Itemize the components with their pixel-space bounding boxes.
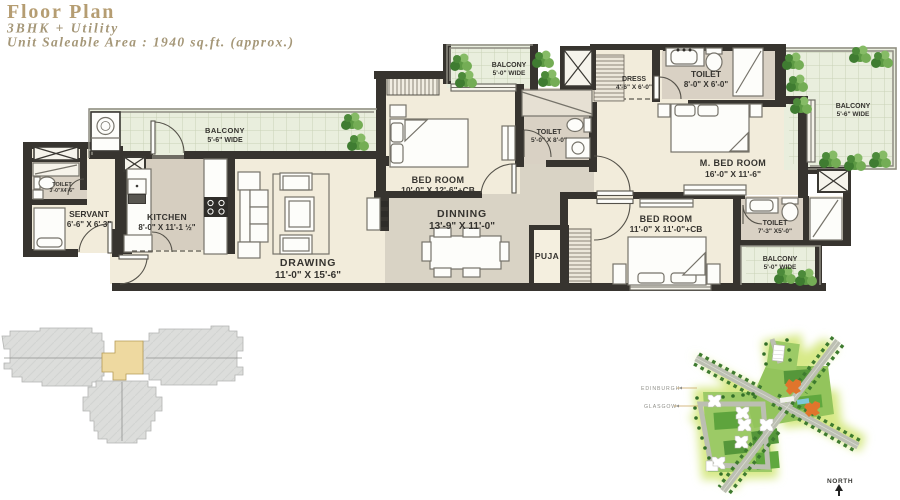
svg-text:DINNING: DINNING (437, 208, 487, 220)
svg-text:7'-3" X5'-0": 7'-3" X5'-0" (758, 228, 792, 235)
svg-text:5'-0" X 8'-0": 5'-0" X 8'-0" (531, 137, 567, 144)
svg-text:16'-0" X 11'-6": 16'-0" X 11'-6" (705, 169, 761, 179)
svg-text:11'-0" X 15'-6": 11'-0" X 15'-6" (275, 270, 341, 281)
svg-text:5'-0" WIDE: 5'-0" WIDE (493, 70, 526, 77)
svg-text:13'-9" X 11'-0": 13'-9" X 11'-0" (429, 221, 495, 232)
svg-text:BED ROOM: BED ROOM (640, 214, 693, 224)
svg-text:Unit Saleable Area : 1940 sq.f: Unit Saleable Area : 1940 sq.ft. (approx… (7, 35, 294, 50)
svg-text:M. BED ROOM: M. BED ROOM (700, 158, 766, 168)
svg-text:SERVANT: SERVANT (69, 209, 110, 219)
svg-text:5'-6" WIDE: 5'-6" WIDE (207, 137, 243, 144)
svg-text:8'-0" X 6'-0": 8'-0" X 6'-0" (684, 80, 729, 89)
svg-text:BED ROOM: BED ROOM (412, 175, 465, 185)
svg-text:8'-0" X 11'-1 ½": 8'-0" X 11'-1 ½" (138, 223, 195, 232)
svg-text:PUJA: PUJA (535, 251, 559, 261)
svg-text:TOILET: TOILET (691, 69, 722, 79)
svg-text:10'-0" X 12'-6"+CB: 10'-0" X 12'-6"+CB (401, 185, 475, 195)
svg-text:BALCONY: BALCONY (763, 256, 798, 263)
svg-text:DRAWING: DRAWING (280, 257, 336, 269)
svg-text:5'-0" WIDE: 5'-0" WIDE (764, 264, 797, 271)
svg-text:DRESS: DRESS (622, 76, 646, 83)
svg-text:BALCONY: BALCONY (492, 62, 527, 69)
svg-text:3'-0"X4'-6": 3'-0"X4'-6" (50, 188, 76, 194)
svg-text:EDINBURGH: EDINBURGH (641, 386, 680, 392)
svg-text:BALCONY: BALCONY (205, 126, 245, 135)
svg-text:GLASGOW: GLASGOW (644, 404, 677, 410)
svg-text:6'-6" X 6'-3": 6'-6" X 6'-3" (67, 220, 112, 229)
svg-text:4'-6" X 6'-0": 4'-6" X 6'-0" (616, 84, 652, 91)
svg-text:TOILET: TOILET (537, 129, 562, 136)
svg-text:NORTH: NORTH (827, 478, 853, 485)
svg-text:11'-0" X 11'-0"+CB: 11'-0" X 11'-0"+CB (630, 224, 703, 234)
svg-text:TOILET: TOILET (763, 220, 788, 227)
svg-text:5'-6" WIDE: 5'-6" WIDE (837, 111, 870, 118)
svg-text:KITCHEN: KITCHEN (147, 212, 187, 222)
svg-text:3BHK + Utility: 3BHK + Utility (6, 21, 119, 36)
svg-text:BALCONY: BALCONY (836, 103, 871, 110)
